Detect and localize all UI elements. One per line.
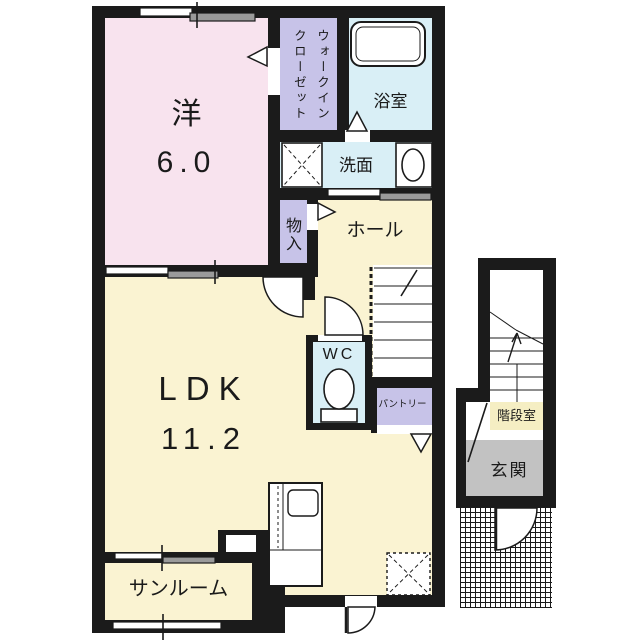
- washroom-label: 洗面: [280, 157, 432, 174]
- wall-segment: [370, 130, 432, 142]
- entrance-label: 玄関: [476, 462, 543, 479]
- storage-label: 物入: [282, 208, 306, 262]
- western-room-label: 洋: [105, 100, 268, 130]
- bathroom-label: 浴室: [349, 93, 432, 110]
- door-opening-wc: [318, 335, 362, 341]
- wall-segment: [303, 277, 315, 300]
- wall-segment: [268, 130, 345, 142]
- wall-segment: [280, 263, 318, 277]
- wall-segment: [268, 18, 280, 48]
- entry-porch: [460, 508, 552, 608]
- wall-segment: [105, 265, 280, 277]
- room-bathroom: [349, 18, 432, 130]
- western-room-size: 6.0: [105, 148, 268, 178]
- walk-in-closet-label: ウォークインクローゼット: [287, 24, 333, 126]
- sunroom-label: サンルーム: [105, 579, 252, 599]
- floor-plan: 洋 6.0 ウォークインクローゼット 浴室 洗面 物入 ホール WC パントリー…: [0, 0, 640, 640]
- wall-segment: [265, 587, 285, 633]
- kitchen-counter: [268, 482, 323, 587]
- door-opening-south: [345, 596, 377, 607]
- door-opening-storage: [307, 204, 318, 230]
- wall-segment: [337, 18, 349, 130]
- wc-label: WC: [306, 347, 372, 363]
- stair-room-label: 階段室: [490, 409, 543, 422]
- wall-segment: [105, 552, 268, 563]
- wall-segment: [373, 377, 432, 388]
- pantry-label: パントリー: [373, 400, 432, 410]
- wall-segment: [280, 188, 432, 200]
- ldk-size: 11.2: [105, 423, 303, 454]
- hall-label: ホール: [318, 221, 432, 240]
- ldk-label: LDK: [105, 372, 303, 405]
- room-ldk: [105, 277, 268, 552]
- door-opening-wic: [268, 48, 280, 95]
- room-western: [105, 18, 268, 265]
- door-opening-bathroom: [345, 130, 370, 142]
